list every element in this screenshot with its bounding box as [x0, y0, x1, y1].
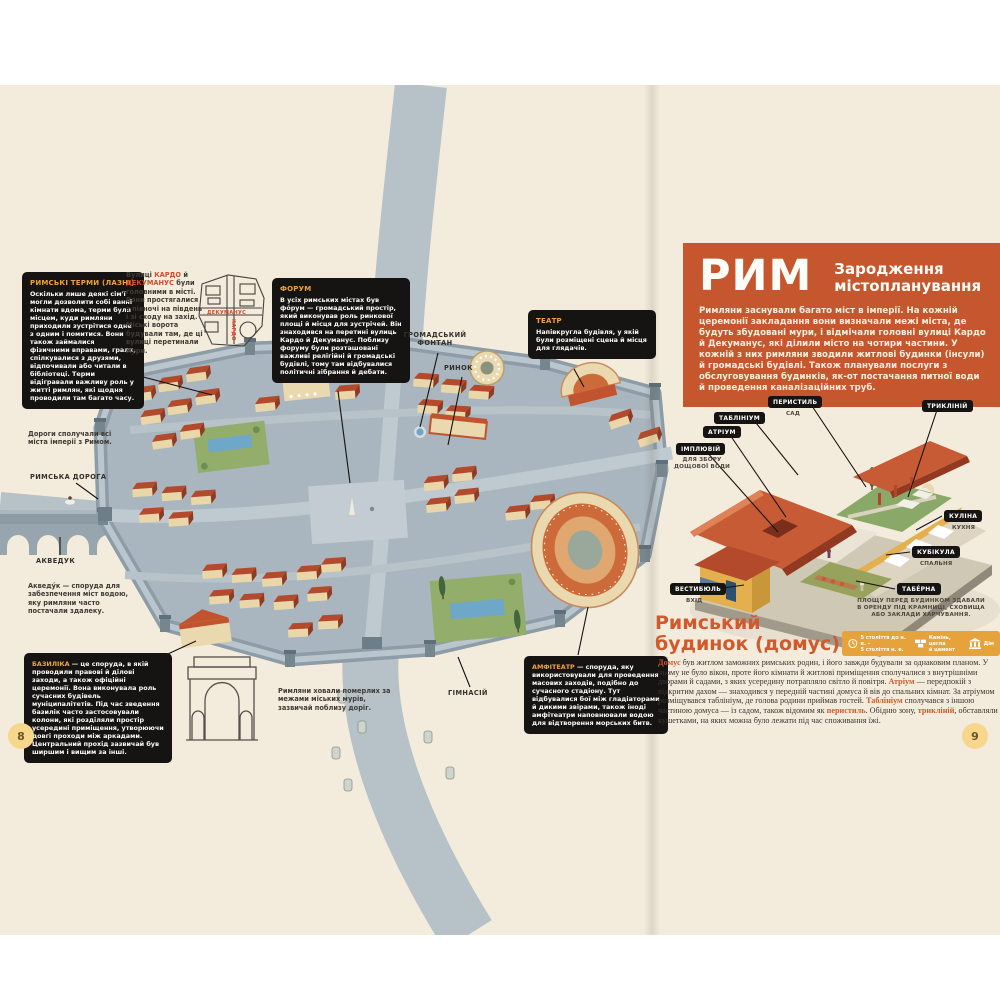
atrium-tag: АТРІУМ — [703, 426, 741, 438]
tablinium-tag: ТАБЛІНІУМ — [714, 412, 765, 424]
taberna-tag: ТАБЕ́РНА — [897, 583, 941, 595]
cubicula-tag: КУБІКУЛА — [912, 546, 960, 558]
triclinium-tag: ТРИКЛІНІЙ — [922, 400, 973, 412]
domus-paragraph: До́мус був житлом заможних римських роди… — [658, 658, 998, 725]
round-temple — [470, 351, 504, 385]
temple-icon — [969, 638, 981, 649]
domus-section-title: Римський будинок (домус) — [655, 613, 855, 655]
market-label: РИНОК — [444, 364, 473, 372]
thermae-title: РИМСЬКІ ТЕРМИ (ЛАЗНІ) — [30, 279, 136, 287]
vestibule-sub: ВХІД — [686, 598, 702, 605]
forum-title: ФОРУМ — [280, 285, 402, 293]
vestibule-tag: ВЕСТИБЮЛЬ — [670, 583, 726, 595]
city-map-illustration — [0, 85, 1000, 935]
public-fountain — [414, 426, 426, 438]
amphitheatre-callout: АМФІТЕАТР — споруда, яку використовували… — [524, 656, 668, 734]
gymnasium-label: ГІМНАСІЙ — [448, 689, 488, 697]
forum-callout: ФОРУМ В усіх римських містах був фо́рум … — [272, 278, 410, 383]
impluvium-tag: ІМПЛЮВІЙ — [676, 443, 725, 455]
chapter-subtitle: Зародження містопланування — [834, 261, 981, 295]
theatre-body: Напівкругла будівля, у якій були розміще… — [536, 328, 648, 352]
minimap-cardo-label: КАРДО — [230, 319, 236, 341]
legend-materials: Камінь, цегла й цемент — [915, 635, 964, 653]
book-spread: РИМСЬКІ ТЕРМИ (ЛАЗНІ) Оскільки лише деяк… — [0, 85, 1000, 935]
taberna-sub: ПЛОЩУ ПЕРЕД БУДИНКОМ ЗДАВАЛИ В ОРЕНДУ ПІ… — [845, 598, 997, 619]
chapter-intro: Римляни заснували багато міст в імперії.… — [699, 306, 986, 394]
fact-legend: 5 століття до н. е. – 5 століття н. е. К… — [842, 631, 1000, 656]
arch-drawing — [186, 657, 258, 740]
right-page-number: 9 — [962, 723, 988, 749]
impluvium-sub: ДЛЯ ЗБОРУ ДОЩОВОЇ ВОДИ — [672, 457, 732, 471]
bricks-icon — [915, 639, 926, 649]
culina-sub: КУХНЯ — [952, 525, 975, 532]
peristyle-tag: ПЕРИСТИЛЬ — [768, 396, 822, 408]
theatre-title: ТЕАТР — [536, 317, 648, 325]
amphitheatre-body: АМФІТЕАТР — споруда, яку використовували… — [532, 663, 660, 727]
forum-body: В усіх римських містах був фо́рум — гром… — [280, 296, 402, 376]
basilica-body: БАЗИЛІКА — це споруда, в якій проводили … — [32, 660, 164, 756]
chapter-header: РИМ Зародження містопланування Римляни з… — [683, 243, 1000, 407]
peristyle-sub: САД — [786, 411, 800, 418]
south-gate — [362, 637, 382, 649]
left-page-number: 8 — [8, 723, 34, 749]
west-gate — [98, 507, 112, 521]
cardo-decumanus-note: Вулиці КАРДО й ДЕКУМАНУС були головними … — [126, 271, 204, 355]
legend-type: Дім — [969, 638, 994, 649]
legend-period: 5 століття до н. е. – 5 століття н. е. — [848, 635, 910, 653]
page-fold — [644, 85, 660, 935]
clock-icon — [848, 638, 858, 649]
cubicula-sub: СПАЛЬНЯ — [920, 561, 952, 568]
thermae-body: Оскільки лише деякі сім'ї могли дозволит… — [30, 290, 136, 402]
aqueduct-note: Акведу́к — споруда для забезпечення міст… — [28, 582, 138, 616]
burial-note: Римляни ховали померлих за межами міськи… — [278, 687, 400, 712]
forum-plaza — [308, 480, 408, 545]
gymnasium-field — [429, 569, 526, 643]
chapter-title: РИМ — [699, 255, 812, 297]
theatre-callout: ТЕАТР Напівкругла будівля, у якій були р… — [528, 310, 656, 359]
minimap-decumanus-label: ДЕКУМАНУС — [207, 310, 246, 316]
basilica-callout: БАЗИЛІКА — це споруда, в якій проводили … — [24, 653, 172, 763]
roman-road-label: РИМСЬКА ДОРОГА — [30, 473, 106, 481]
aqueduct-label: АКВЕДУК — [36, 557, 75, 565]
fountain-label: ГРОМАДСЬКИЙ ФОНТАН — [400, 331, 470, 347]
roads-note: Дороги сполучали всі міста імперії з Рим… — [28, 430, 124, 447]
culina-tag: КУЛІНА — [944, 510, 982, 522]
